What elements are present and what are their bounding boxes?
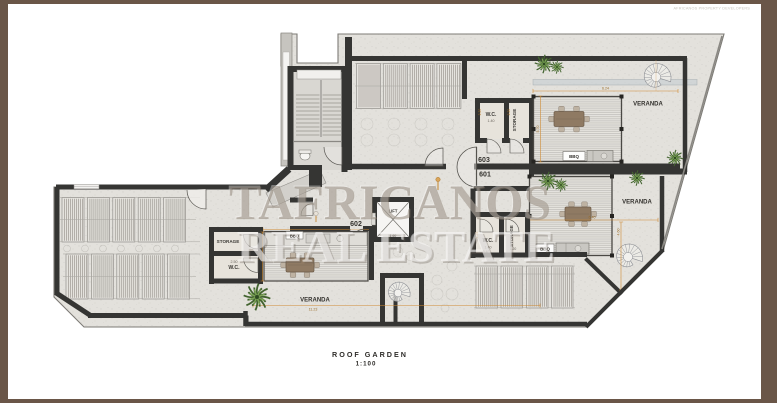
svg-text:BBQ: BBQ (569, 154, 579, 159)
svg-text:STORAGE: STORAGE (512, 109, 517, 132)
svg-text:W.C.: W.C. (486, 112, 497, 118)
svg-text:2.20: 2.20 (478, 109, 482, 116)
svg-text:6.40: 6.40 (589, 216, 596, 220)
svg-text:4.60: 4.60 (617, 229, 621, 236)
svg-text:11.23: 11.23 (309, 308, 318, 312)
svg-text:ROOF GARDEN: ROOF GARDEN (332, 350, 408, 359)
svg-text:VERANDA: VERANDA (300, 298, 330, 304)
svg-text:AFRICANOS PROPERTY DEVELOPERS: AFRICANOS PROPERTY DEVELOPERS (673, 7, 750, 11)
svg-text:REAL ESTATE: REAL ESTATE (238, 223, 556, 272)
svg-text:VERANDA: VERANDA (622, 200, 652, 206)
svg-text:6.24: 6.24 (602, 87, 609, 91)
svg-text:1.40: 1.40 (488, 119, 495, 123)
svg-text:1:100: 1:100 (356, 361, 377, 368)
svg-text:VERANDA: VERANDA (633, 102, 663, 108)
svg-text:5.70: 5.70 (536, 126, 540, 133)
svg-text:603: 603 (478, 157, 490, 164)
svg-text:2.20: 2.20 (507, 109, 511, 116)
